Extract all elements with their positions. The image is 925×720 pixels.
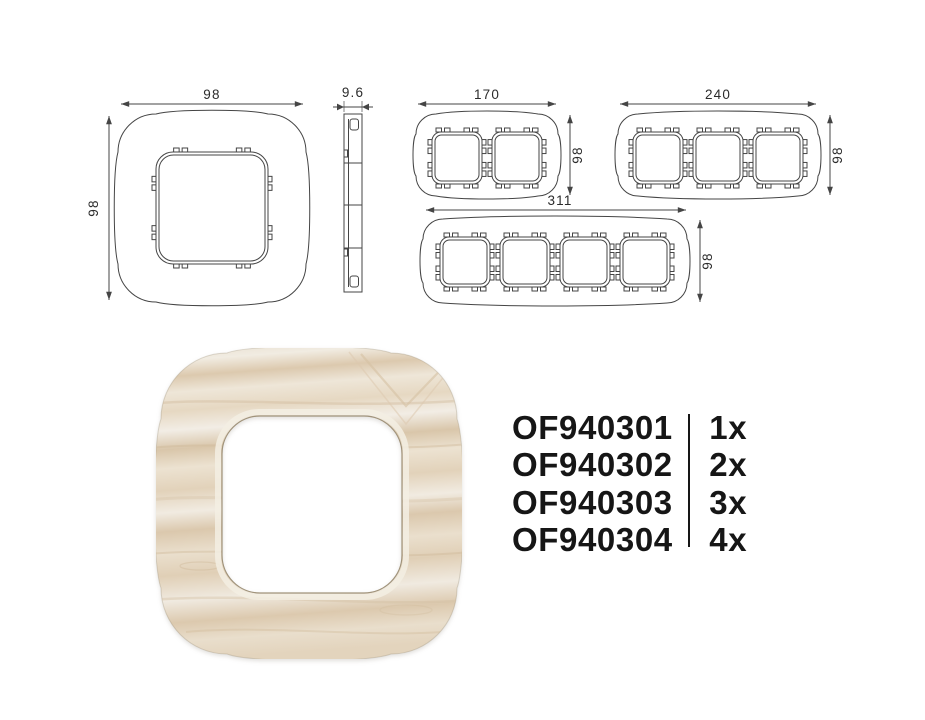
technical-drawings: 98 98 9.6 170 98 240 — [0, 0, 925, 335]
dim-3gang-width: 240 — [620, 87, 816, 104]
dim-label-1gang-height: 98 — [86, 199, 101, 216]
code-count-divider — [688, 414, 691, 547]
gang-count: 1x — [709, 409, 747, 446]
dim-3gang-height: 98 — [830, 115, 845, 195]
dim-label-3gang-width: 240 — [705, 87, 731, 102]
dim-side-depth: 9.6 — [333, 85, 373, 112]
dim-1gang-height: 98 — [86, 116, 109, 300]
dim-label-2gang-width: 170 — [474, 87, 500, 102]
opening-outline — [222, 416, 402, 593]
drawing-frame-1gang — [114, 110, 310, 306]
product-code: OF940304 — [512, 521, 673, 558]
product-code: OF940303 — [512, 484, 673, 521]
dim-label-4gang-height: 98 — [700, 252, 715, 269]
dim-label-2gang-height: 98 — [570, 146, 585, 163]
product-render-wood-frame — [156, 348, 462, 659]
product-code: OF940302 — [512, 446, 673, 483]
gang-count: 4x — [709, 521, 747, 558]
opening-bevel-ring — [218, 412, 406, 597]
dim-label-side-depth: 9.6 — [342, 85, 364, 100]
dim-2gang-width: 170 — [418, 87, 556, 104]
product-code-list: OF940301 OF940302 OF940303 OF940304 1x 2… — [512, 409, 747, 559]
dim-4gang-width: 311 — [426, 193, 686, 210]
dim-4gang-height: 98 — [700, 220, 715, 302]
code-column: OF940301 OF940302 OF940303 OF940304 — [512, 409, 673, 559]
gang-count: 3x — [709, 484, 747, 521]
dim-2gang-height: 98 — [570, 115, 585, 195]
count-column: 1x 2x 3x 4x — [709, 409, 747, 559]
dim-1gang-width: 98 — [121, 87, 303, 104]
gang-count: 2x — [709, 446, 747, 483]
spec-sheet: 98 98 9.6 170 98 240 — [0, 0, 925, 720]
dim-label-1gang-width: 98 — [203, 87, 220, 102]
dim-label-4gang-width: 311 — [547, 193, 572, 208]
drawing-frame-2gang — [413, 111, 561, 199]
product-code: OF940301 — [512, 409, 673, 446]
drawing-frame-4gang — [420, 216, 690, 306]
drawing-frame-3gang — [615, 111, 821, 199]
dim-label-3gang-height: 98 — [830, 146, 845, 163]
drawing-side-profile — [344, 114, 362, 292]
